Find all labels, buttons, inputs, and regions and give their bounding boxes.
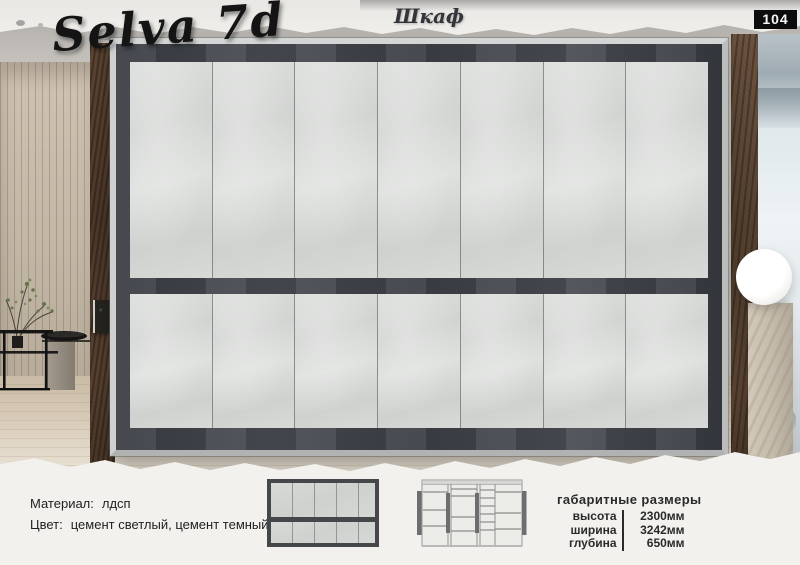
- sphere-lamp: [736, 249, 792, 305]
- front-view-thumbnail: [267, 479, 379, 547]
- wardrobe-door: [213, 62, 296, 278]
- page-number-badge: 104: [754, 10, 797, 29]
- wardrobe-door: [544, 62, 627, 278]
- wardrobe-door: [295, 62, 378, 278]
- dimensions-block: габаритные размеры высота ширина глубина…: [557, 492, 702, 551]
- dimensions-title: габаритные размеры: [557, 492, 702, 507]
- material-label: Материал:: [30, 493, 94, 514]
- wardrobe-door: [461, 62, 544, 278]
- material-row: Материал:лдсп: [30, 493, 269, 514]
- wardrobe-door: [378, 62, 461, 278]
- dim-value-height: 2300мм: [629, 510, 685, 524]
- dim-label-depth: глубина: [569, 537, 617, 551]
- wardrobe-product: [110, 38, 728, 456]
- wardrobe-door: [130, 294, 213, 428]
- color-label: Цвет:: [30, 514, 63, 535]
- wardrobe-door: [544, 294, 627, 428]
- wardrobe-upper-doors: [130, 62, 708, 278]
- material-value: лдсп: [102, 496, 131, 511]
- marble-pedestal: [748, 303, 793, 478]
- thumbnail-lower-doors: [271, 522, 375, 543]
- color-value: цемент светлый, цемент темный: [71, 517, 269, 532]
- room-scene: [0, 0, 800, 478]
- dimension-labels: высота ширина глубина: [569, 510, 622, 551]
- sea-horizon: [758, 88, 800, 128]
- wardrobe-door: [626, 294, 708, 428]
- thumbnail-upper-doors: [271, 483, 375, 517]
- wardrobe-door: [130, 62, 213, 278]
- catalog-page: Шкаф Selva 7d 104 Материал:лдсп Цвет:цем…: [0, 0, 800, 565]
- color-row: Цвет:цемент светлый, цемент темный: [30, 514, 269, 535]
- wardrobe-door: [213, 294, 296, 428]
- dimension-values: 2300мм 3242мм 650мм: [622, 510, 685, 551]
- dim-value-width: 3242мм: [629, 524, 685, 538]
- wardrobe-lower-doors: [130, 294, 708, 428]
- wardrobe-door: [295, 294, 378, 428]
- wardrobe-door: [378, 294, 461, 428]
- wardrobe-door: [626, 62, 708, 278]
- dim-value-depth: 650мм: [629, 537, 685, 551]
- wardrobe-door: [461, 294, 544, 428]
- dim-label-width: ширина: [569, 524, 617, 538]
- materials-block: Материал:лдсп Цвет:цемент светлый, цемен…: [30, 493, 269, 535]
- interior-view-thumbnail: [415, 477, 529, 555]
- dimensions-table: высота ширина глубина 2300мм 3242мм 650м…: [569, 510, 702, 551]
- dim-label-height: высота: [569, 510, 617, 524]
